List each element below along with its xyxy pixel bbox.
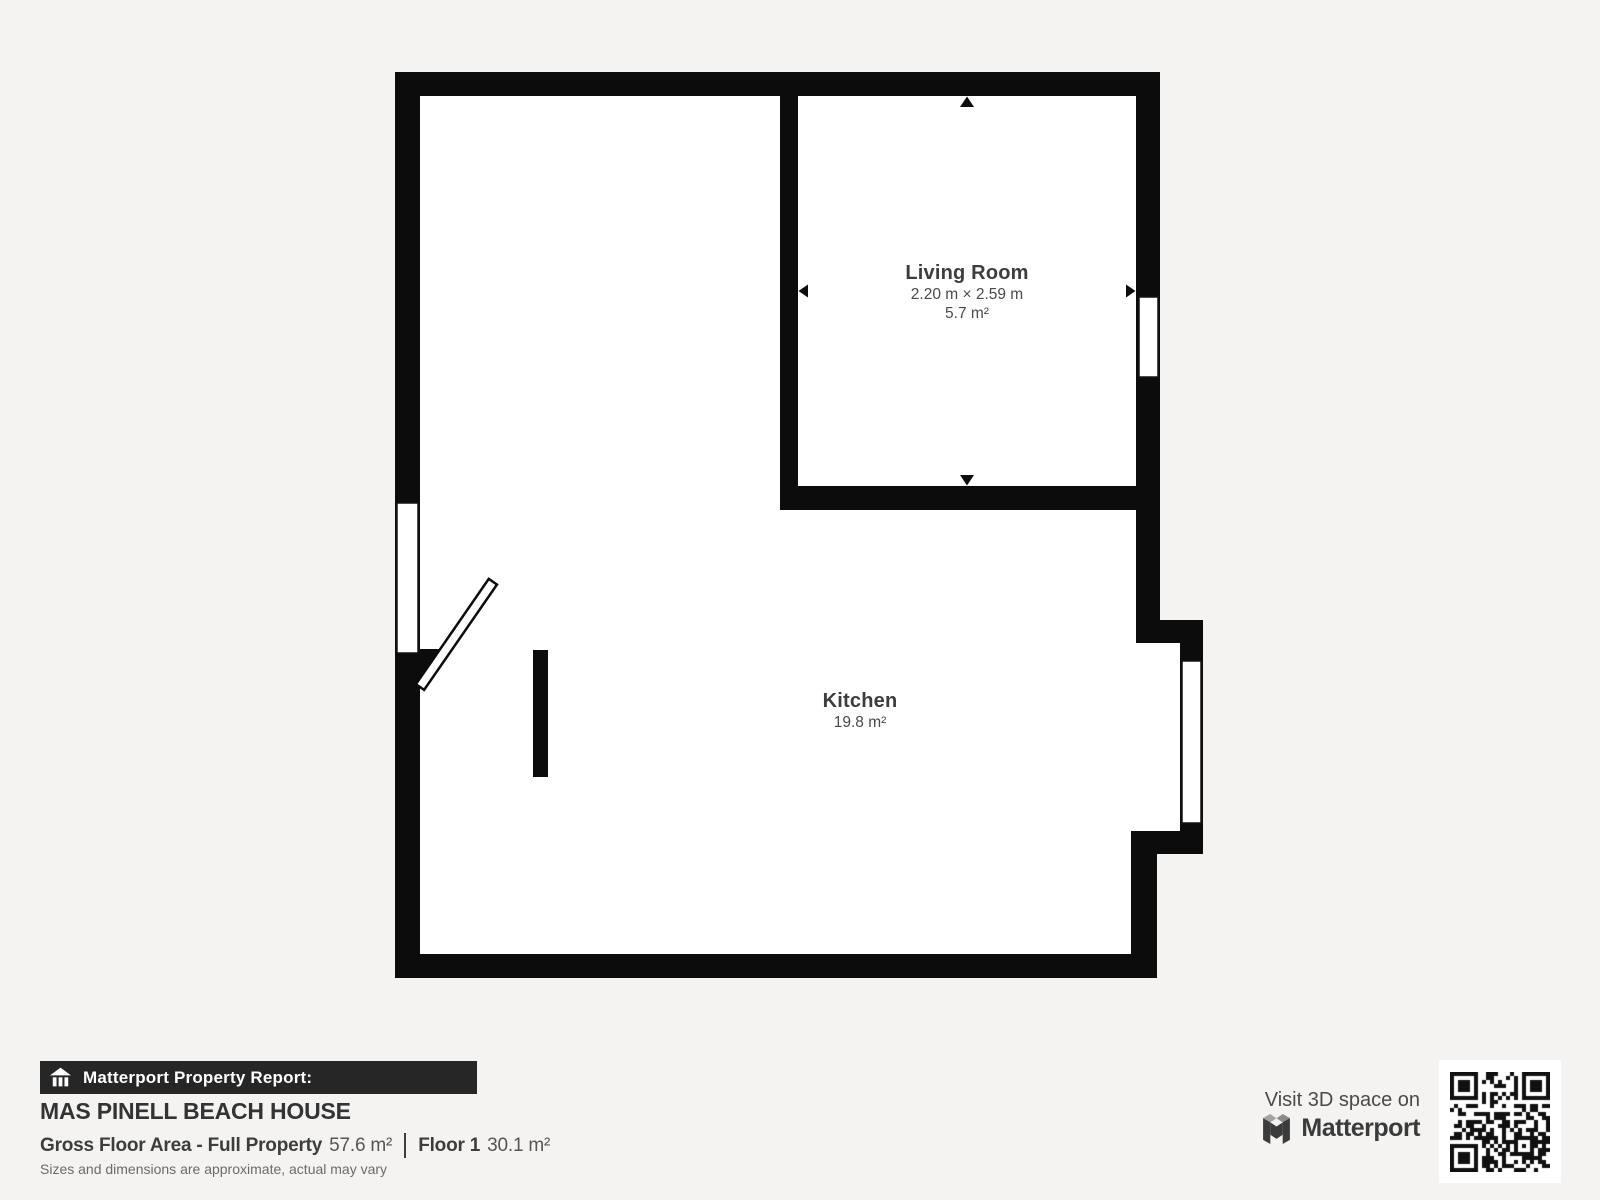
matterport-wordmark: Matterport — [1301, 1114, 1420, 1143]
window-kitchen-bay — [1182, 661, 1201, 823]
property-title: MAS PINELL BEACH HOUSE — [40, 1098, 351, 1125]
report-bar-label: Matterport Property Report: — [83, 1068, 312, 1088]
qr-code-pattern — [1450, 1072, 1550, 1172]
window-living-room — [1139, 297, 1158, 377]
house-chart-icon — [49, 1066, 72, 1089]
matterport-logo: Matterport — [1261, 1112, 1420, 1145]
floor-area-stats: Gross Floor Area - Full Property 57.6 m²… — [40, 1133, 550, 1158]
kitchen-name: Kitchen — [710, 690, 1010, 713]
gross-floor-area-value: 57.6 m² — [329, 1135, 392, 1157]
visit-3d-space-text: Visit 3D space on — [1265, 1089, 1420, 1112]
qr-code — [1439, 1060, 1561, 1183]
window-left-wall — [397, 503, 418, 653]
report-header-bar: Matterport Property Report: — [40, 1061, 477, 1094]
living-room-name: Living Room — [817, 262, 1117, 285]
disclaimer-text: Sizes and dimensions are approximate, ac… — [40, 1161, 387, 1177]
matterport-m-icon — [1261, 1112, 1292, 1145]
kitchen-stub-wall — [533, 650, 548, 777]
living-room-label: Living Room 2.20 m × 2.59 m 5.7 m² — [817, 262, 1117, 323]
gross-floor-area-label: Gross Floor Area - Full Property — [40, 1135, 322, 1157]
matterport-floorplan-report: Living Room 2.20 m × 2.59 m 5.7 m² Kitch… — [0, 0, 1600, 1200]
living-room-dimensions: 2.20 m × 2.59 m — [817, 285, 1117, 304]
floor1-label: Floor 1 — [418, 1135, 480, 1157]
kitchen-area: 19.8 m² — [710, 713, 1010, 732]
stats-divider — [404, 1133, 406, 1158]
floor-plan — [0, 0, 1600, 1200]
floor1-area-value: 30.1 m² — [487, 1135, 550, 1157]
kitchen-label: Kitchen 19.8 m² — [710, 690, 1010, 732]
living-room-area: 5.7 m² — [817, 304, 1117, 323]
